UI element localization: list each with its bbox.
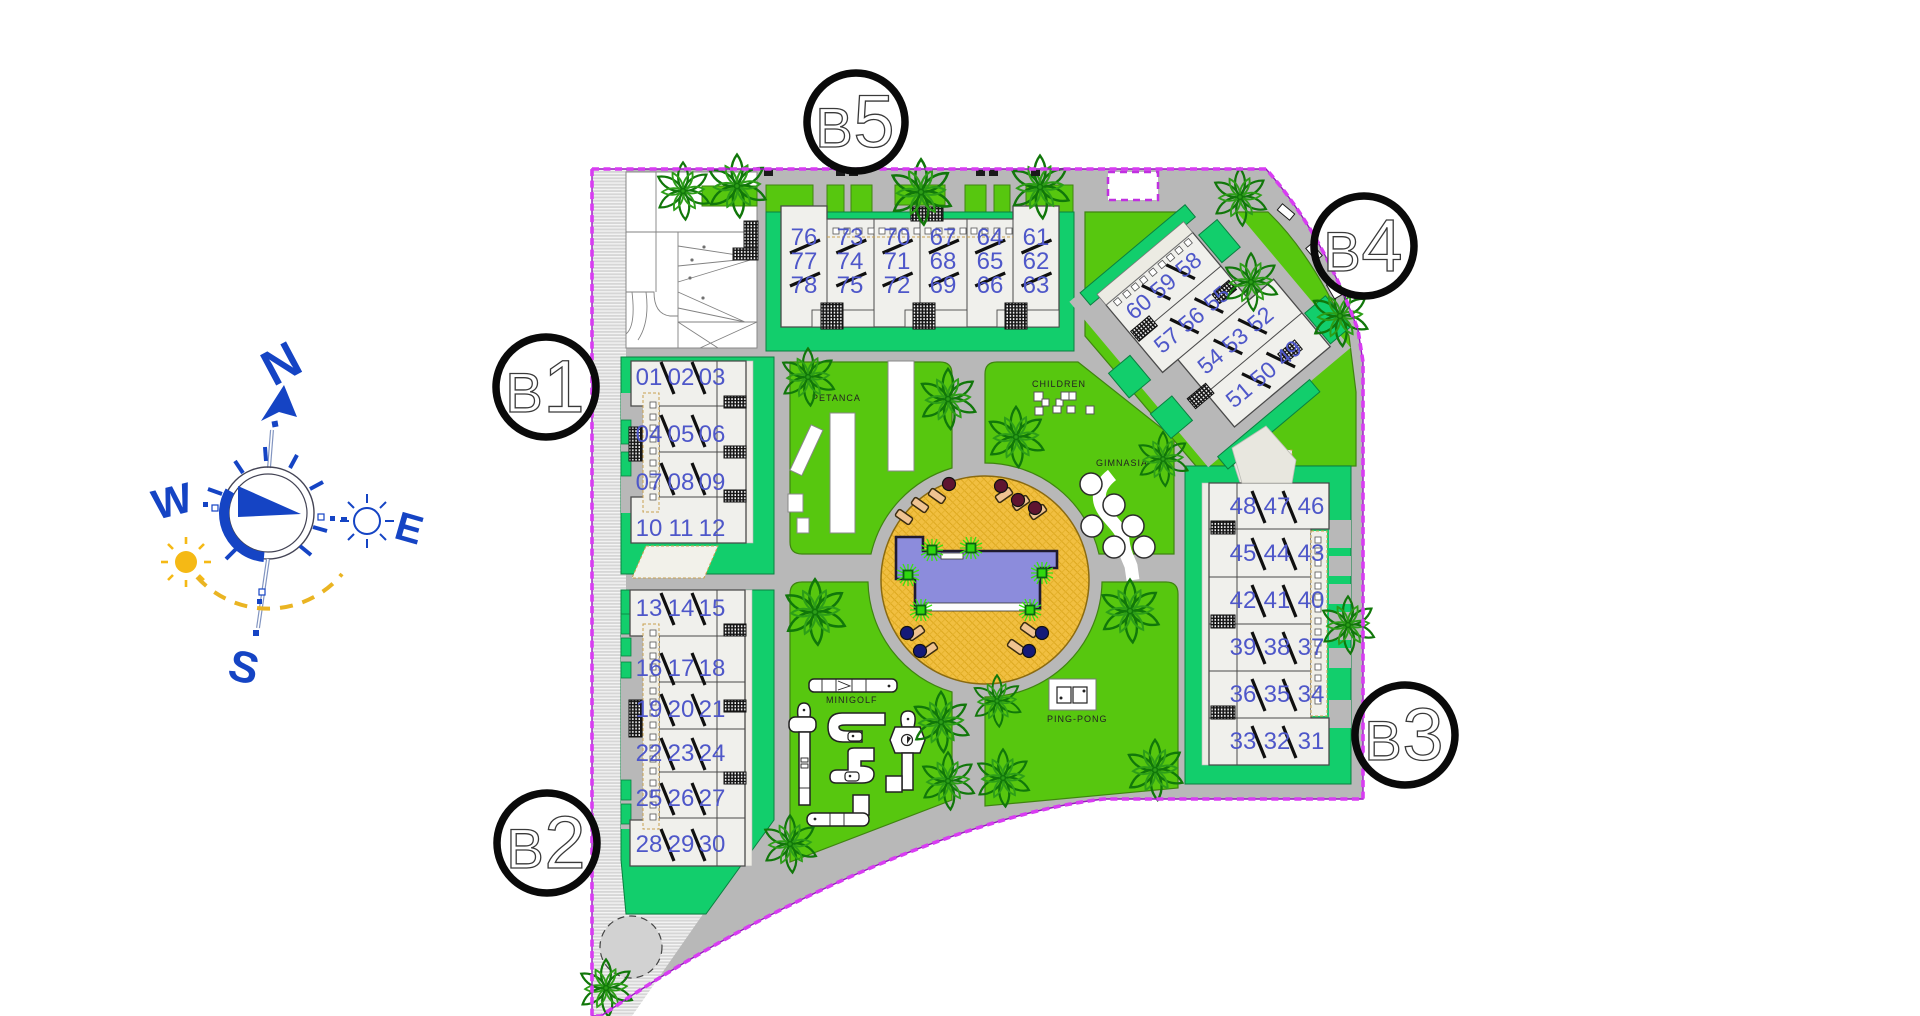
svg-text:26: 26	[668, 785, 695, 812]
svg-text:34: 34	[1298, 681, 1325, 708]
svg-text:07: 07	[636, 469, 663, 496]
svg-text:19: 19	[636, 696, 663, 723]
svg-text:63: 63	[1023, 272, 1050, 299]
svg-text:15: 15	[699, 595, 726, 622]
svg-text:48: 48	[1230, 493, 1257, 520]
svg-text:20: 20	[668, 696, 695, 723]
svg-text:2: 2	[544, 801, 585, 884]
svg-text:40: 40	[1298, 587, 1325, 614]
svg-text:41: 41	[1264, 587, 1291, 614]
svg-text:04: 04	[636, 421, 663, 448]
svg-text:29: 29	[668, 831, 695, 858]
svg-text:77: 77	[791, 248, 818, 275]
svg-text:B: B	[1364, 709, 1401, 772]
svg-text:13: 13	[636, 595, 663, 622]
svg-text:28: 28	[636, 831, 663, 858]
svg-text:MINIGOLF: MINIGOLF	[826, 695, 878, 705]
svg-text:B: B	[815, 96, 852, 159]
svg-text:23: 23	[668, 740, 695, 767]
svg-text:5: 5	[853, 80, 894, 163]
svg-text:75: 75	[837, 272, 864, 299]
svg-text:02: 02	[668, 364, 695, 391]
svg-text:12: 12	[699, 515, 726, 542]
svg-text:09: 09	[699, 469, 726, 496]
svg-text:62: 62	[1023, 248, 1050, 275]
svg-text:67: 67	[930, 224, 957, 251]
svg-text:69: 69	[930, 272, 957, 299]
svg-text:24: 24	[699, 740, 726, 767]
svg-text:B: B	[506, 817, 543, 880]
svg-text:38: 38	[1264, 634, 1291, 661]
svg-text:44: 44	[1264, 540, 1291, 567]
svg-text:36: 36	[1230, 681, 1257, 708]
svg-text:CHILDREN: CHILDREN	[1032, 379, 1086, 389]
svg-text:GIMNASIA: GIMNASIA	[1096, 458, 1148, 468]
svg-text:42: 42	[1230, 587, 1257, 614]
svg-text:73: 73	[837, 224, 864, 251]
svg-text:01: 01	[636, 364, 663, 391]
svg-text:72: 72	[884, 272, 911, 299]
svg-text:46: 46	[1298, 493, 1325, 520]
svg-text:4: 4	[1361, 204, 1402, 287]
svg-text:B: B	[505, 361, 542, 424]
svg-text:68: 68	[930, 248, 957, 275]
svg-text:1: 1	[543, 345, 584, 428]
svg-text:11: 11	[669, 515, 694, 542]
svg-text:43: 43	[1298, 540, 1325, 567]
svg-text:25: 25	[636, 785, 663, 812]
svg-text:71: 71	[884, 248, 911, 275]
svg-text:22: 22	[636, 740, 663, 767]
svg-text:21: 21	[699, 696, 726, 723]
svg-text:B: B	[1323, 220, 1360, 283]
svg-text:16: 16	[636, 655, 663, 682]
svg-text:33: 33	[1230, 728, 1257, 755]
svg-text:27: 27	[699, 785, 726, 812]
svg-text:47: 47	[1264, 493, 1291, 520]
svg-text:39: 39	[1230, 634, 1257, 661]
svg-text:PING-PONG: PING-PONG	[1047, 714, 1108, 724]
svg-text:10: 10	[636, 515, 663, 542]
svg-text:18: 18	[699, 655, 726, 682]
svg-text:61: 61	[1023, 224, 1050, 251]
svg-text:66: 66	[977, 272, 1004, 299]
svg-text:74: 74	[837, 248, 864, 275]
svg-text:08: 08	[668, 469, 695, 496]
svg-text:65: 65	[977, 248, 1004, 275]
svg-text:37: 37	[1298, 634, 1325, 661]
svg-text:30: 30	[699, 831, 726, 858]
svg-text:32: 32	[1264, 728, 1291, 755]
svg-text:78: 78	[791, 272, 818, 299]
svg-text:14: 14	[668, 595, 695, 622]
svg-text:17: 17	[668, 655, 695, 682]
svg-text:64: 64	[977, 224, 1004, 251]
svg-text:35: 35	[1264, 681, 1291, 708]
svg-text:76: 76	[791, 224, 818, 251]
svg-text:05: 05	[668, 421, 695, 448]
svg-text:45: 45	[1230, 540, 1257, 567]
svg-text:31: 31	[1298, 728, 1325, 755]
svg-text:03: 03	[699, 364, 726, 391]
svg-text:06: 06	[699, 421, 726, 448]
svg-text:3: 3	[1402, 693, 1443, 776]
svg-text:70: 70	[884, 224, 911, 251]
